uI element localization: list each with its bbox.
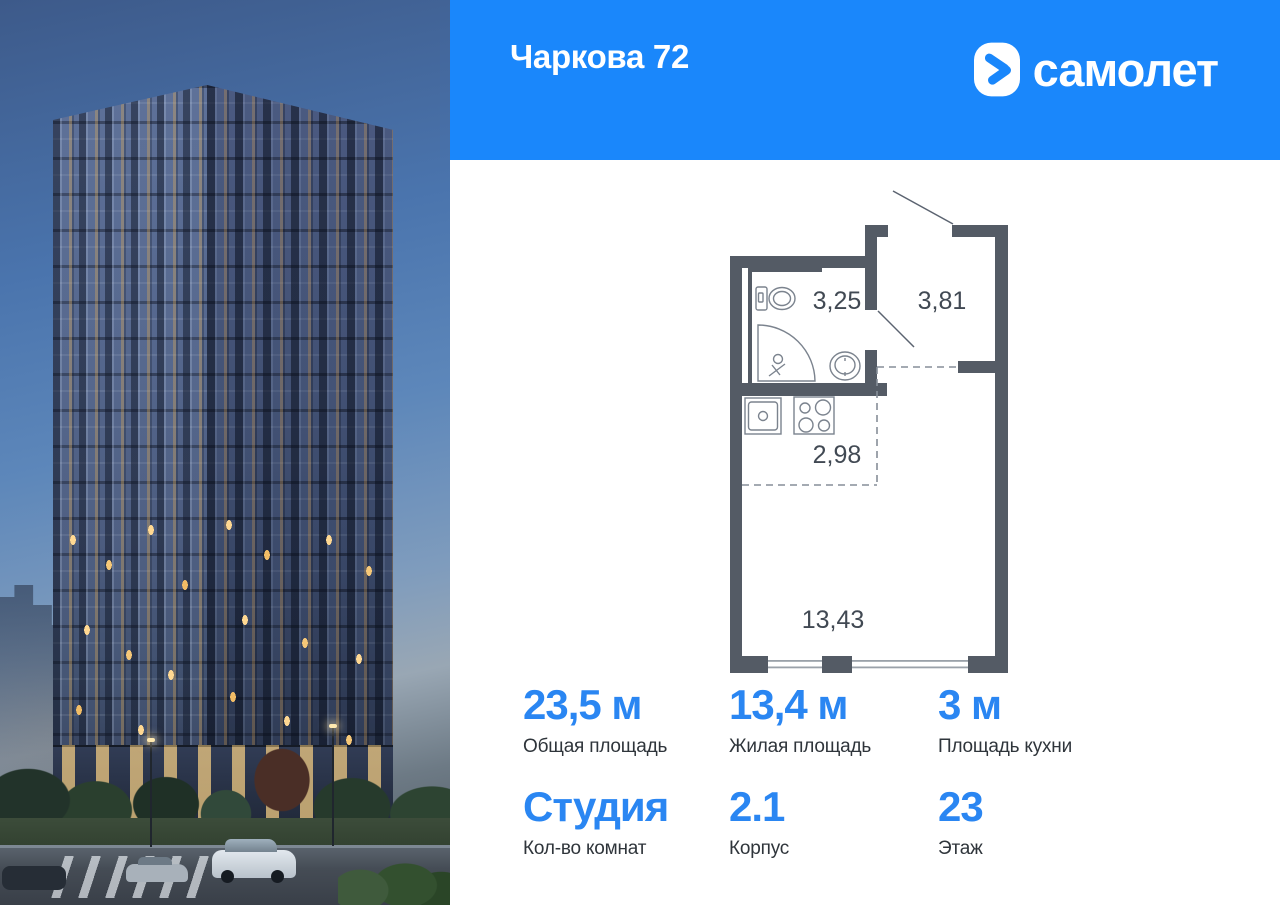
room-area-bathroom: 3,25 <box>813 287 862 315</box>
stove-icon <box>794 397 834 434</box>
toilet-icon <box>756 287 795 310</box>
stat-room-count: Студия Кол-во комнат <box>523 786 723 860</box>
stat-value: 3 м <box>938 684 1138 726</box>
parked-car <box>2 866 66 890</box>
bushes <box>338 856 450 905</box>
stat-kitchen-area: 3 м Площадь кухни <box>938 684 1138 758</box>
room-area-hallway: 3,81 <box>918 287 967 315</box>
flat-card: Чаркова 72 самолет <box>0 0 1280 905</box>
street-lamp <box>150 742 152 847</box>
stat-value: 23,5 м <box>523 684 723 726</box>
stat-label: Корпус <box>729 838 929 860</box>
stat-value: 23 <box>938 786 1138 828</box>
building-photo <box>0 0 450 905</box>
door-swing-lines <box>878 191 953 347</box>
header: Чаркова 72 самолет <box>450 0 1280 160</box>
brand-name: самолет <box>1033 46 1218 93</box>
stat-value: 2.1 <box>729 786 929 828</box>
stat-label: Этаж <box>938 838 1138 860</box>
stat-value: Студия <box>523 786 723 828</box>
room-area-kitchen: 2,98 <box>813 441 862 469</box>
stat-label: Общая площадь <box>523 736 723 758</box>
page-title: Чаркова 72 <box>510 38 689 76</box>
shower-icon <box>758 325 815 381</box>
suv-car <box>212 850 296 878</box>
bathroom-sink-icon <box>830 352 860 380</box>
stat-floor: 23 Этаж <box>938 786 1138 860</box>
stat-building: 2.1 Корпус <box>729 786 929 860</box>
stat-total-area: 23,5 м Общая площадь <box>523 684 723 758</box>
kitchen-sink-icon <box>745 398 781 434</box>
samolet-logo: самолет <box>974 42 1218 97</box>
street-lamp <box>332 728 334 846</box>
stat-living-area: 13,4 м Жилая площадь <box>729 684 929 758</box>
stat-label: Площадь кухни <box>938 736 1138 758</box>
room-area-living: 13,43 <box>802 606 865 634</box>
stat-label: Кол-во комнат <box>523 838 723 860</box>
stat-value: 13,4 м <box>729 684 929 726</box>
floorplan: 3,25 3,81 2,98 13,43 <box>725 188 1015 675</box>
samolet-arrow-icon <box>974 42 1020 97</box>
floorplan-svg: 3,25 3,81 2,98 13,43 <box>725 188 1015 675</box>
stat-label: Жилая площадь <box>729 736 929 758</box>
parked-car <box>126 864 188 882</box>
